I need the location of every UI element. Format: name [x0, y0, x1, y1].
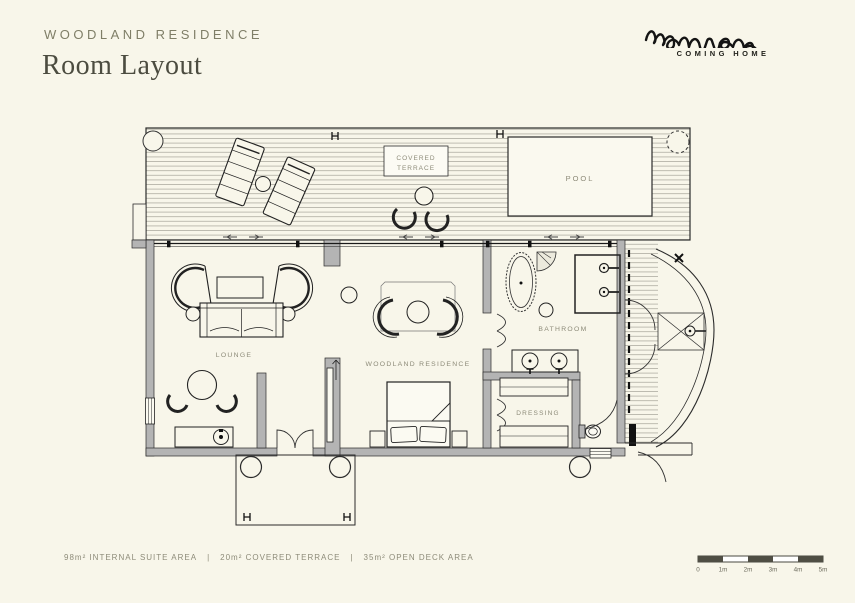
scale-tick: 4m: [794, 567, 803, 574]
minibar-console: [175, 427, 233, 447]
bedroom-label: WOODLAND RESIDENCE: [366, 361, 471, 368]
gate-door: [638, 452, 666, 482]
covered-terrace-label: COVERED: [396, 155, 435, 162]
stool: [539, 303, 553, 317]
porch-column: [241, 457, 262, 478]
open-deck-area: 35m² OPEN DECK AREA: [364, 553, 474, 562]
dressing-label: DRESSING: [516, 410, 560, 417]
porch-column: [570, 457, 591, 478]
wc-door: [585, 400, 617, 429]
entry-porch: [236, 455, 591, 525]
areas-footnote: 98m² INTERNAL SUITE AREA|20m² COVERED TE…: [64, 553, 474, 562]
bathtub-drain: [520, 282, 523, 285]
scale-tick: 1m: [719, 567, 728, 574]
window: [146, 398, 155, 424]
covered-terrace-label-box: COVERED TERRACE: [384, 146, 448, 176]
scale-bar: 0 1m 2m 3m 4m 5m: [696, 556, 827, 574]
lounge-sofa: [200, 303, 283, 337]
dining-chair: [217, 395, 236, 411]
pool-label: POOL: [566, 174, 595, 183]
bedroom: WOODLAND RESIDENCE: [366, 282, 471, 447]
dining-chair: [168, 395, 187, 411]
pillow: [391, 426, 418, 442]
pool: POOL: [508, 137, 652, 216]
scale-tick: 3m: [769, 567, 778, 574]
porch-column: [330, 457, 351, 478]
coffee-table: [217, 277, 263, 298]
wardrobe: [500, 426, 568, 447]
scale-tick: 5m: [819, 567, 828, 574]
bathroom-label: BATHROOM: [538, 326, 587, 333]
internal-suite-area: 98m² INTERNAL SUITE AREA: [64, 553, 197, 562]
covered-terrace-area: 20m² COVERED TERRACE: [220, 553, 340, 562]
side-table: [341, 287, 357, 303]
dressing-room: DRESSING: [500, 378, 617, 447]
covered-terrace-label: TERRACE: [397, 165, 435, 172]
entry-double-door: [277, 430, 313, 448]
bathroom: BATHROOM: [506, 252, 620, 374]
outdoor-shower-tray: [658, 313, 706, 350]
steps: [590, 449, 611, 459]
shower: [575, 255, 620, 313]
room-layout-page: WOODLAND RESIDENCE Room Layout COMING HO…: [0, 0, 855, 603]
nightstand: [370, 431, 385, 447]
floor-plan: POOL COVERED TERRACE: [0, 0, 855, 603]
terrace-table: [415, 187, 433, 205]
lounger-side-table: [256, 177, 271, 192]
scale-tick: 2m: [744, 567, 753, 574]
toilet: [579, 425, 601, 438]
lounge-label: LOUNGE: [216, 352, 253, 359]
vanity: [512, 350, 578, 374]
dining-table: [188, 371, 217, 400]
bed: [387, 382, 450, 447]
round-table: [407, 301, 429, 323]
pillow: [420, 426, 447, 442]
nightstand: [452, 431, 467, 447]
tree-circle-dashed: [667, 131, 689, 153]
scale-tick: 0: [696, 567, 700, 574]
tap-icon: [675, 254, 683, 262]
side-table: [186, 307, 200, 321]
deck-step: [133, 204, 146, 240]
tree-circle: [143, 131, 163, 151]
